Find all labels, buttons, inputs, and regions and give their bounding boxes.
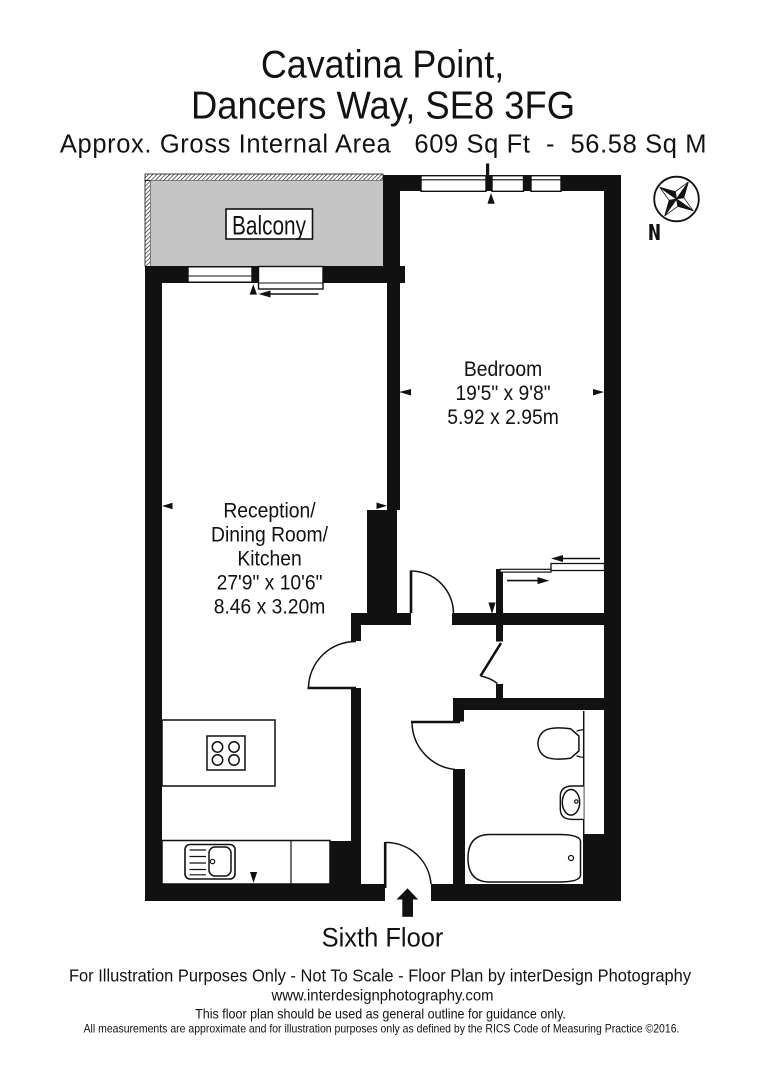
svg-text:Dining Room/: Dining Room/ [211, 524, 328, 547]
svg-text:Dancers Way, SE8 3FG: Dancers Way, SE8 3FG [191, 84, 575, 127]
svg-text:www.interdesignphotography.com: www.interdesignphotography.com [271, 987, 494, 1005]
svg-text:For Illustration Purposes Only: For Illustration Purposes Only - Not To … [69, 965, 691, 986]
svg-text:All measurements are approxima: All measurements are approximate and for… [84, 1023, 680, 1036]
svg-text:27'9" x 10'6": 27'9" x 10'6" [217, 572, 323, 595]
svg-text:Reception/: Reception/ [223, 500, 316, 523]
svg-text:This floor plan should be used: This floor plan should be used as genera… [195, 1006, 566, 1022]
svg-text:Sixth Floor: Sixth Floor [322, 922, 444, 953]
svg-text:Bedroom: Bedroom [464, 358, 542, 381]
svg-text:Approx. Gross Internal Area: Approx. Gross Internal Area 609 Sq Ft - … [60, 131, 707, 159]
svg-text:5.92 x 2.95m: 5.92 x 2.95m [447, 406, 559, 429]
svg-text:Cavatina Point,: Cavatina Point, [261, 42, 504, 86]
svg-text:Balcony: Balcony [232, 211, 306, 241]
svg-text:19'5" x 9'8": 19'5" x 9'8" [455, 382, 550, 405]
svg-text:Kitchen: Kitchen [237, 548, 301, 571]
svg-text:8.46 x 3.20m: 8.46 x 3.20m [214, 596, 326, 619]
